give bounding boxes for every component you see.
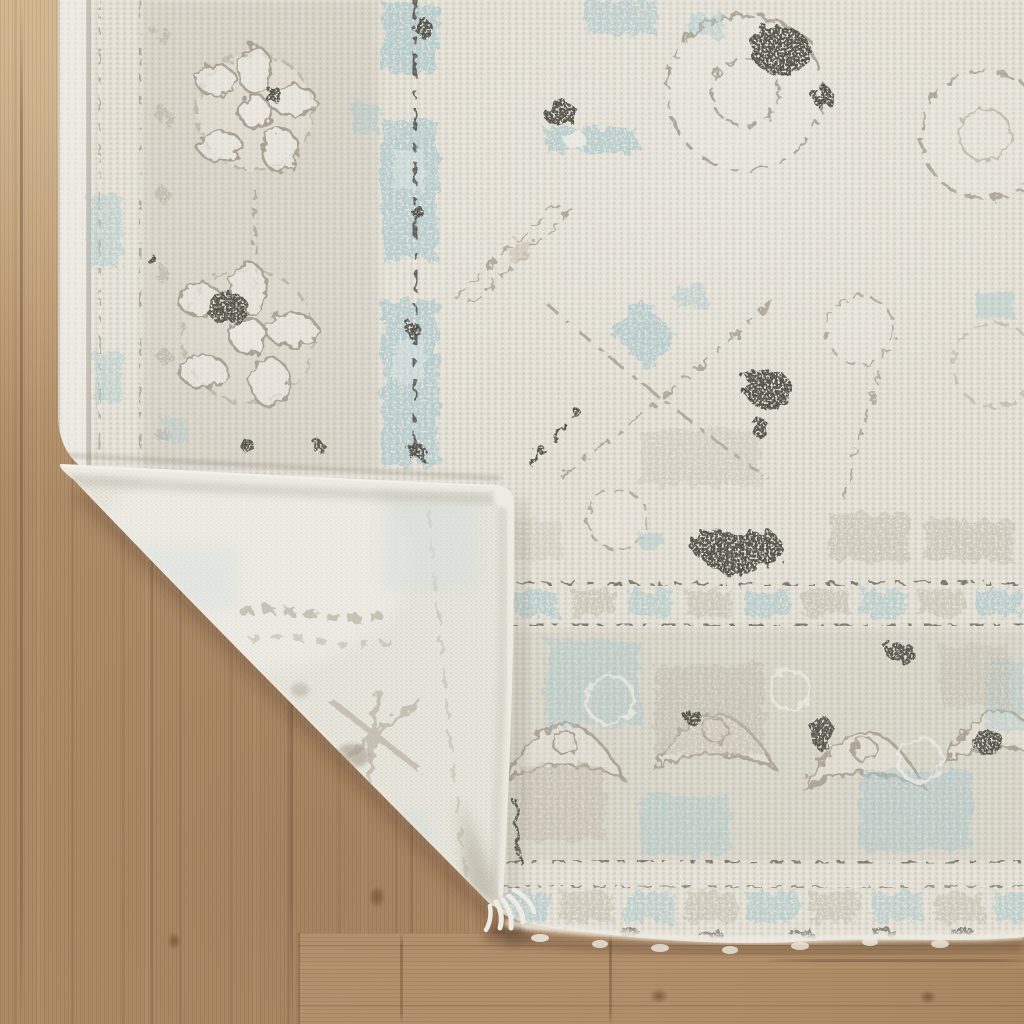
scene [0,0,1024,1024]
rug [0,0,1024,1024]
photo-grain [0,0,1024,1024]
